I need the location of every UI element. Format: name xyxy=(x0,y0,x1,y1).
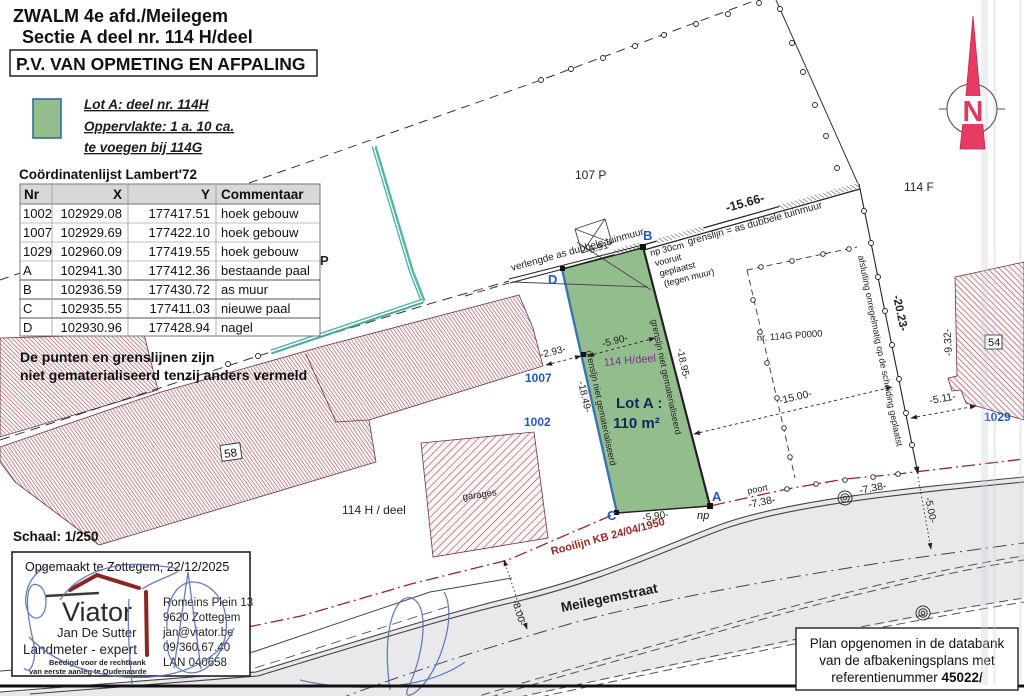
svg-text:te voegen bij 114G: te voegen bij 114G xyxy=(84,140,203,155)
svg-text:1029: 1029 xyxy=(984,410,1011,424)
svg-text:58: 58 xyxy=(224,447,238,461)
svg-text:177411.03: 177411.03 xyxy=(150,301,211,316)
svg-text:102930.96: 102930.96 xyxy=(61,320,122,335)
svg-text:Beëdigd voor de rechtbank: Beëdigd voor de rechtbank xyxy=(49,658,147,667)
svg-text:N: N xyxy=(963,96,984,128)
svg-text:Coördinatenlijst Lambert'72: Coördinatenlijst Lambert'72 xyxy=(19,167,197,182)
svg-text:Opgemaakt te Zottegem, 22/12/2: Opgemaakt te Zottegem, 22/12/2025 xyxy=(25,560,229,574)
svg-text:177412.36: 177412.36 xyxy=(149,263,210,278)
svg-text:Plan opgenomen in de databank: Plan opgenomen in de databank xyxy=(810,636,1005,651)
svg-text:van de afbakeningsplans met: van de afbakeningsplans met xyxy=(819,653,995,668)
svg-text:A: A xyxy=(23,263,32,278)
svg-text:van eerste aanleg te Oudenaard: van eerste aanleg te Oudenaarde xyxy=(29,667,147,676)
svg-text:np: np xyxy=(697,510,709,522)
svg-text:D: D xyxy=(23,320,32,335)
svg-text:177422.10: 177422.10 xyxy=(149,225,210,240)
svg-text:102935.55: 102935.55 xyxy=(61,301,122,316)
svg-text:C: C xyxy=(607,508,617,523)
svg-text:P: P xyxy=(320,253,329,268)
svg-text:hoek gebouw: hoek gebouw xyxy=(221,206,299,221)
svg-text:177430.72: 177430.72 xyxy=(149,282,210,297)
svg-text:Nr: Nr xyxy=(24,187,40,202)
svg-text:-9.32-: -9.32- xyxy=(942,328,955,357)
svg-text:B: B xyxy=(643,228,652,243)
svg-text:110 m²: 110 m² xyxy=(613,415,660,432)
svg-text:1002: 1002 xyxy=(23,206,52,221)
svg-text:177419.55: 177419.55 xyxy=(149,244,210,259)
svg-text:B: B xyxy=(23,282,32,297)
svg-text:1002: 1002 xyxy=(524,415,551,429)
svg-text:114 F: 114 F xyxy=(904,180,934,194)
svg-text:hoek gebouw: hoek gebouw xyxy=(221,244,299,259)
svg-text:niet gematerialiseerd tenzij a: niet gematerialiseerd tenzij anders verm… xyxy=(20,367,307,383)
svg-text:102941.30: 102941.30 xyxy=(61,263,122,278)
svg-text:9620 Zottegem: 9620 Zottegem xyxy=(163,612,240,624)
svg-text:Viator: Viator xyxy=(62,597,132,627)
svg-text:102936.59: 102936.59 xyxy=(61,282,122,297)
svg-text:Landmeter - expert: Landmeter - expert xyxy=(23,642,137,657)
svg-text:1007: 1007 xyxy=(23,225,52,240)
svg-text:D: D xyxy=(548,272,557,287)
svg-text:Lot A :: Lot A : xyxy=(616,395,662,412)
svg-text:Sectie A deel nr. 114 H/deel: Sectie A deel nr. 114 H/deel xyxy=(22,27,253,47)
svg-text:Commentaar: Commentaar xyxy=(221,187,304,202)
svg-text:Romeins Plein 13: Romeins Plein 13 xyxy=(163,597,253,609)
svg-text:114 H / deel: 114 H / deel xyxy=(342,503,406,517)
svg-text:1007: 1007 xyxy=(525,371,552,385)
svg-text:177428.94: 177428.94 xyxy=(149,320,210,335)
svg-text:Schaal: 1/250: Schaal: 1/250 xyxy=(13,529,99,544)
svg-text:102929.69: 102929.69 xyxy=(61,225,122,240)
svg-text:X: X xyxy=(113,187,122,202)
svg-text:C: C xyxy=(23,301,32,316)
svg-text:Oppervlakte: 1 a. 10 ca.: Oppervlakte: 1 a. 10 ca. xyxy=(84,119,234,134)
svg-text:102929.08: 102929.08 xyxy=(61,206,122,221)
svg-text:ZWALM 4e afd./Meilegem: ZWALM 4e afd./Meilegem xyxy=(13,6,228,26)
svg-text:Lot A: deel nr. 114H: Lot A: deel nr. 114H xyxy=(84,97,209,112)
svg-text:177417.51: 177417.51 xyxy=(149,206,210,221)
svg-text:107 P: 107 P xyxy=(575,168,606,182)
svg-text:Jan De Sutter: Jan De Sutter xyxy=(57,625,137,640)
svg-text:nagel: nagel xyxy=(221,320,253,335)
svg-text:referentienummer 45022/: referentienummer 45022/ xyxy=(831,670,983,685)
svg-text:A: A xyxy=(712,489,722,504)
svg-text:bestaande paal: bestaande paal xyxy=(221,263,310,278)
svg-text:Y: Y xyxy=(201,187,210,202)
svg-text:1029: 1029 xyxy=(23,244,52,259)
svg-text:jan@viator.be: jan@viator.be xyxy=(162,627,234,639)
svg-text:102960.09: 102960.09 xyxy=(61,244,122,259)
svg-text:as muur: as muur xyxy=(221,282,269,297)
svg-text:nieuwe paal: nieuwe paal xyxy=(221,301,290,316)
svg-text:De punten en grenslijnen zijn: De punten en grenslijnen zijn xyxy=(20,349,214,365)
svg-text:hoek gebouw: hoek gebouw xyxy=(221,225,299,240)
svg-text:P.V. VAN OPMETING EN AFPALING: P.V. VAN OPMETING EN AFPALING xyxy=(16,54,305,74)
